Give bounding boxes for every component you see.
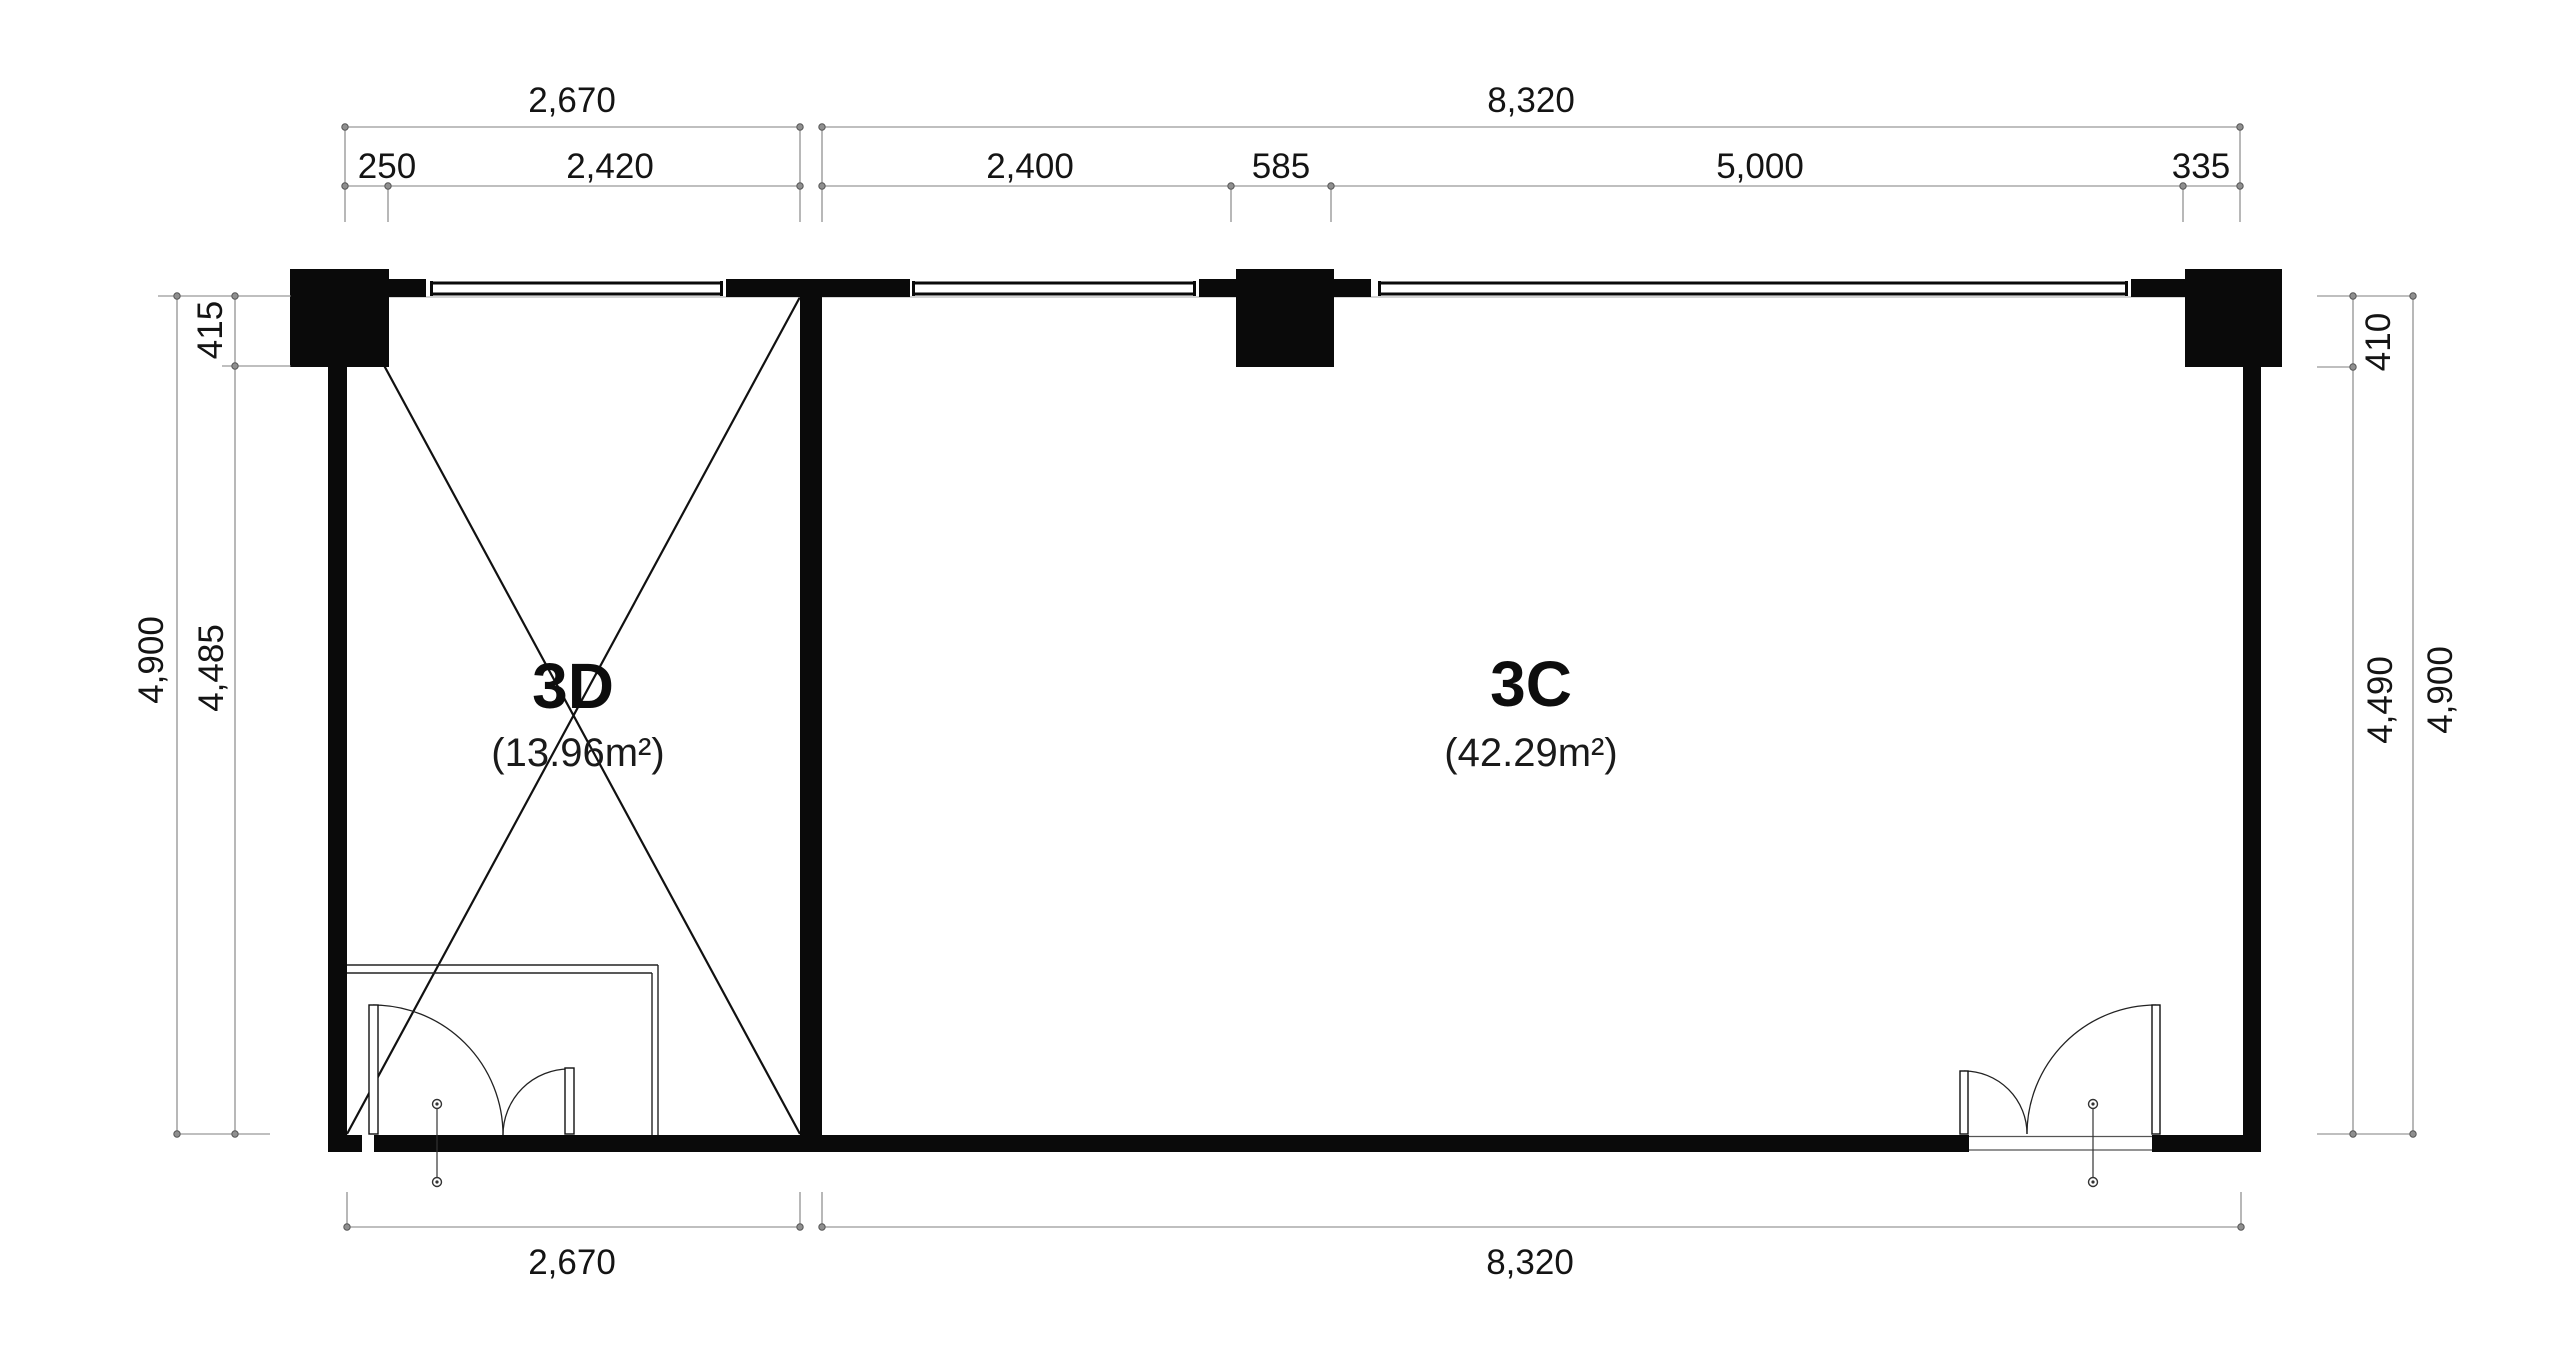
right-dimension-lines: 410 4,490 4,900 — [2317, 293, 2460, 1137]
door-leaf-3d-right — [565, 1068, 574, 1134]
dim-right-4900: 4,900 — [2421, 646, 2460, 734]
floor-plan-page: 3D (13.96m²) 3C (42.29m²) 2,670 8,320 25… — [0, 0, 2560, 1366]
left-wall — [328, 367, 347, 1152]
left-dimension-lines: 415 4,485 4,900 — [132, 293, 291, 1137]
dim-left-4900: 4,900 — [132, 616, 171, 704]
column-top-right — [2185, 269, 2282, 367]
dim-top-seg-585: 585 — [1252, 147, 1310, 186]
dim-top-overall-right: 8,320 — [1487, 81, 1575, 120]
door-leaf-3d-left — [369, 1005, 378, 1134]
wall-stub-left — [389, 279, 426, 297]
window-1 — [430, 281, 723, 296]
room-3d-labels: 3D (13.96m²) — [491, 650, 664, 775]
dim-top-overall-left: 2,670 — [528, 81, 616, 120]
wall-stub-center-left — [1199, 279, 1236, 297]
bottom-wall-corner-right — [2152, 1135, 2261, 1152]
bottom-dimension-lines: 2,670 8,320 — [344, 1192, 2244, 1282]
dim-top-seg-5000: 5,000 — [1716, 147, 1804, 186]
walls — [328, 297, 2261, 1152]
dim-right-410: 410 — [2359, 313, 2398, 371]
door-room-3d — [369, 1005, 574, 1187]
right-wall — [2243, 367, 2261, 1152]
dim-right-4490: 4,490 — [2361, 656, 2400, 744]
dim-top-seg-335: 335 — [2172, 147, 2230, 186]
door-swing-arc-3c-left — [1964, 1071, 2027, 1134]
room-3c-area: (42.29m²) — [1444, 731, 1617, 775]
wall-stub-center-right — [1334, 279, 1371, 297]
room-3d-name: 3D — [532, 650, 614, 722]
wall-stub-partition-head — [726, 279, 910, 297]
door-swing-arc-3d-right — [503, 1069, 569, 1135]
dim-left-415: 415 — [191, 301, 230, 359]
door-swing-arc-3c-right — [2027, 1005, 2156, 1134]
column-top-left — [290, 269, 389, 367]
dim-top-seg-250: 250 — [358, 147, 416, 186]
bottom-wall-corner-left — [328, 1135, 362, 1152]
bottom-wall-main — [374, 1135, 1969, 1152]
partition-wall — [800, 297, 822, 1135]
dim-top-seg-2400: 2,400 — [986, 147, 1074, 186]
floor-plan-drawing: 3D (13.96m²) 3C (42.29m²) 2,670 8,320 25… — [0, 0, 2560, 1366]
door-axis-marker-3c — [2089, 1100, 2098, 1187]
room-3c-labels: 3C (42.29m²) — [1444, 648, 1617, 775]
top-dimension-lines: 2,670 8,320 250 2,420 2,400 585 5,000 33… — [342, 81, 2243, 222]
window-3 — [1378, 281, 2128, 296]
door-leaf-3c-left — [1960, 1071, 1968, 1134]
door-room-3c — [1960, 1005, 2160, 1187]
dim-top-seg-2420: 2,420 — [566, 147, 654, 186]
column-top-center — [1236, 269, 1334, 367]
wall-stub-right — [2131, 279, 2185, 297]
dim-left-4485: 4,485 — [192, 624, 231, 712]
room-3d-area: (13.96m²) — [491, 731, 664, 775]
door-leaf-3c-right — [2152, 1005, 2160, 1134]
dim-bottom-left: 2,670 — [528, 1243, 616, 1282]
window-2 — [912, 281, 1196, 296]
room-3c-name: 3C — [1490, 648, 1572, 720]
dim-bottom-right: 8,320 — [1486, 1243, 1574, 1282]
door-swing-arc-3d-left — [373, 1005, 503, 1135]
